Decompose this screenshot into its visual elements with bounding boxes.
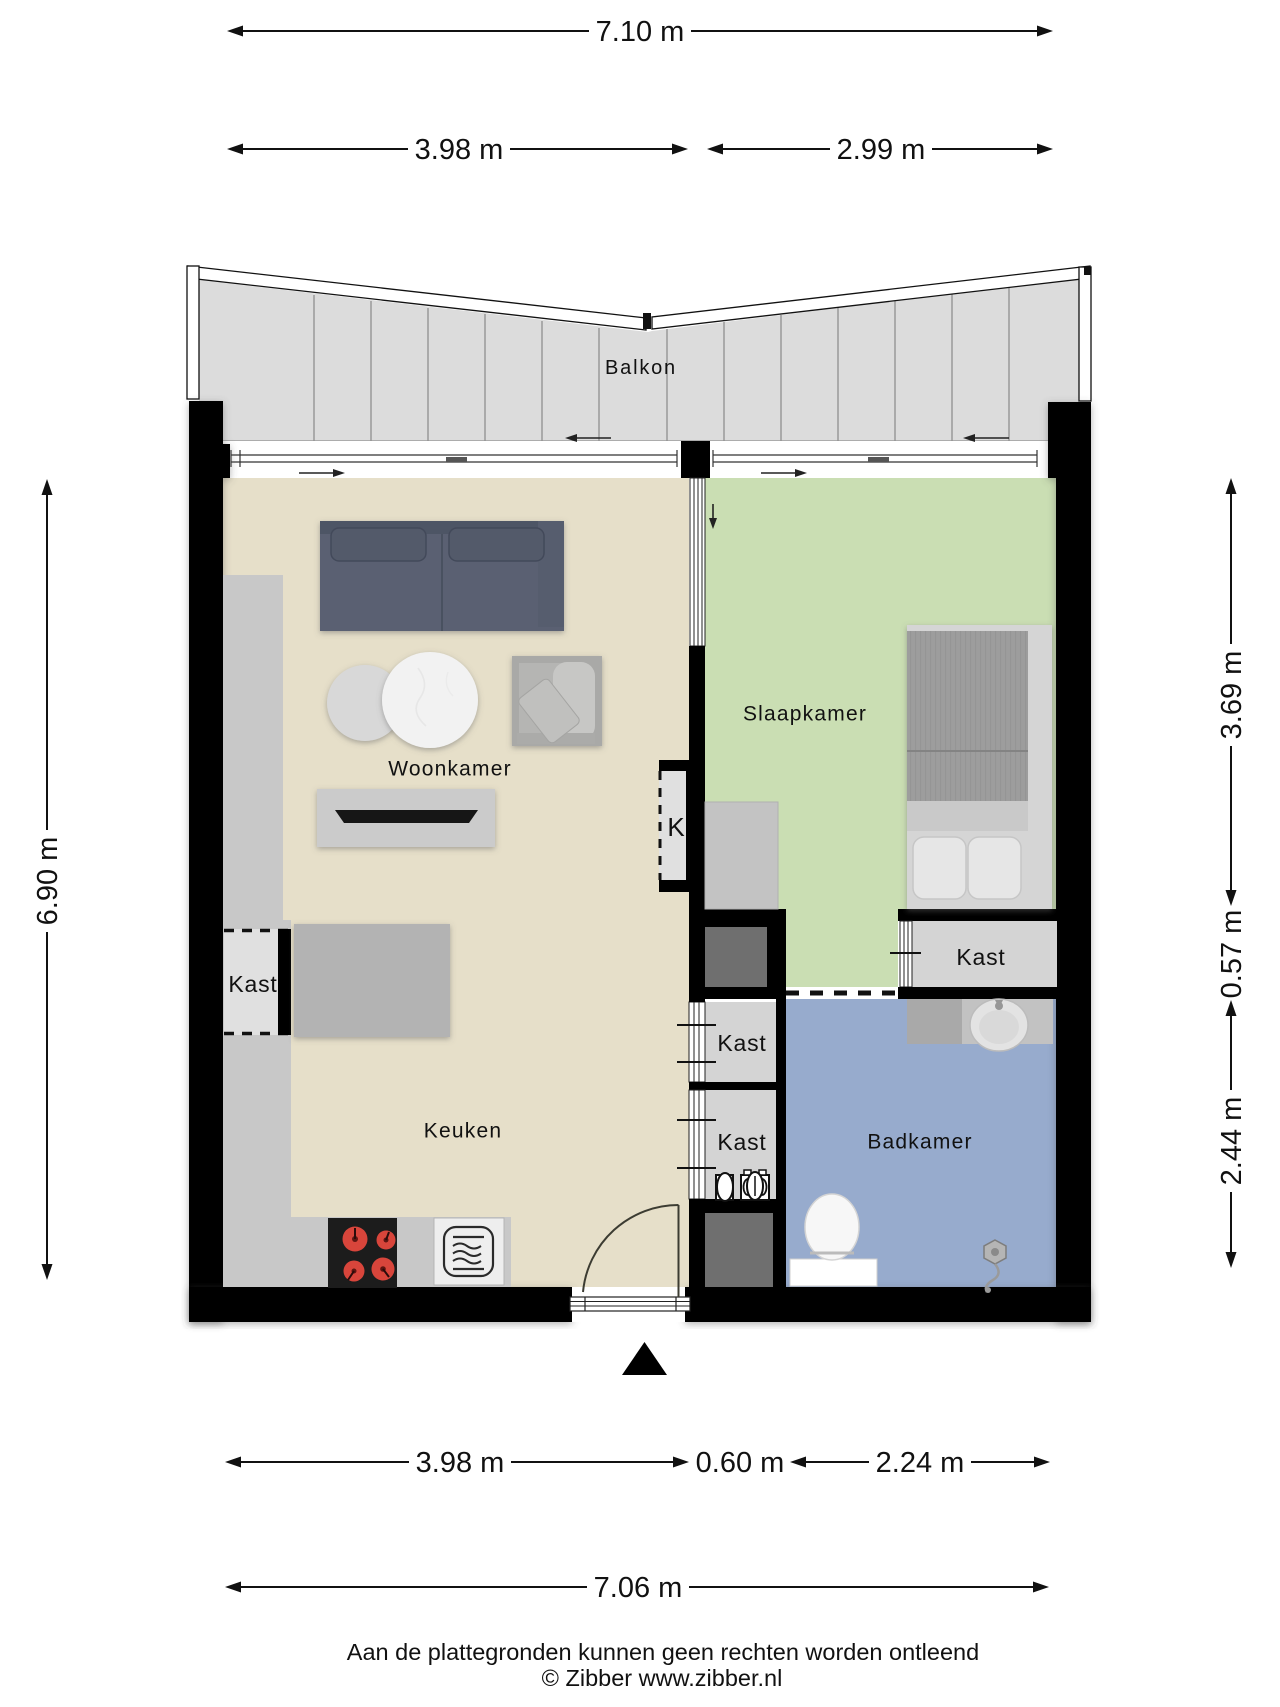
svg-text:2.24 m: 2.24 m	[876, 1447, 965, 1479]
svg-text:6.90 m: 6.90 m	[32, 837, 64, 926]
svg-text:3.98 m: 3.98 m	[416, 1447, 505, 1479]
svg-text:0.57 m: 0.57 m	[1216, 910, 1248, 999]
svg-text:2.99 m: 2.99 m	[837, 134, 926, 166]
svg-text:Keuken: Keuken	[424, 1120, 502, 1143]
svg-text:Kast: Kast	[717, 1030, 766, 1056]
svg-text:Balkon: Balkon	[605, 357, 677, 379]
svg-text:7.10 m: 7.10 m	[596, 16, 685, 48]
svg-text:Kast: Kast	[956, 944, 1005, 970]
svg-text:2.44 m: 2.44 m	[1216, 1097, 1248, 1186]
svg-text:© Zibber www.zibber.nl: © Zibber www.zibber.nl	[542, 1665, 783, 1691]
svg-text:Badkamer: Badkamer	[867, 1131, 972, 1154]
svg-text:Kast: Kast	[228, 971, 277, 997]
svg-text:K: K	[667, 812, 685, 842]
svg-text:3.98 m: 3.98 m	[415, 134, 504, 166]
svg-text:0.60 m: 0.60 m	[696, 1447, 785, 1479]
svg-text:Woonkamer: Woonkamer	[388, 758, 512, 781]
svg-text:Slaapkamer: Slaapkamer	[743, 703, 867, 726]
svg-text:Aan de plattegronden kunnen ge: Aan de plattegronden kunnen geen rechten…	[347, 1639, 979, 1665]
svg-text:7.06 m: 7.06 m	[594, 1572, 683, 1604]
svg-text:Kast: Kast	[717, 1129, 766, 1155]
svg-text:3.69 m: 3.69 m	[1216, 651, 1248, 740]
